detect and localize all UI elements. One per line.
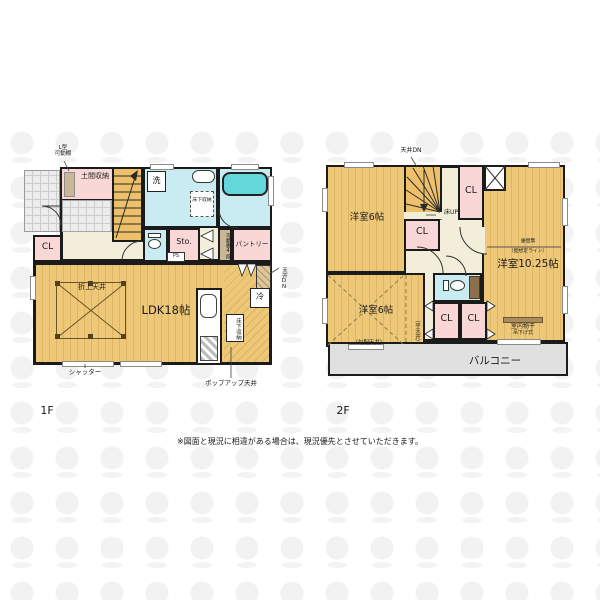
entrance-porch	[24, 170, 60, 232]
floor-up-label: 床UP	[438, 210, 464, 217]
underfloor-storage-label: 床下収納	[191, 192, 213, 204]
ceiling-dn-strip-1f	[256, 265, 271, 290]
corner-unit	[484, 165, 506, 191]
disclaimer-text: ※図面と現況に相違がある場合は、現況優先とさせていただきます。	[0, 438, 600, 447]
toilet-tank-2f	[443, 280, 449, 291]
window-balcony-door	[497, 339, 541, 345]
closet-1f-label: CL	[33, 242, 62, 252]
kitchen-stove	[200, 336, 218, 361]
genkan-tile	[62, 200, 112, 232]
underfloor-storage-box: 床下収納	[190, 191, 214, 217]
l-shelf-annotation: L型 可動棚	[42, 145, 84, 157]
underfloor-kitchen-label: 床下収納	[230, 316, 241, 341]
window	[562, 198, 568, 226]
toilet-bowl-2f	[450, 280, 465, 291]
stairs-2f	[404, 165, 442, 214]
slope-ceiling-label: （勾配天井）	[344, 340, 394, 346]
movable-shelf-4-label: 可動棚4段	[220, 231, 230, 261]
vanity-sink	[192, 170, 215, 183]
wall-opening	[481, 227, 485, 254]
shutter-label: シャッター	[62, 369, 108, 376]
bedroom6-bottom-label: 洋室6帖	[348, 306, 404, 317]
raised-ceiling-label: 折上天井	[66, 284, 118, 292]
window-shutter	[62, 361, 114, 367]
closet-2f-b-label: CL	[404, 227, 440, 238]
pantry-label: パントリー	[232, 241, 272, 248]
fridge-label: 冷	[250, 293, 270, 302]
bathtub	[222, 172, 268, 196]
toilet-bowl-1f	[148, 239, 161, 249]
bedroom1025-label: 洋室10.25帖	[490, 259, 566, 271]
washer-label: 洗	[147, 177, 166, 186]
tarekabe-label: 垂壁無	[500, 239, 556, 244]
window	[268, 176, 274, 206]
window	[344, 162, 374, 168]
window	[322, 298, 328, 324]
window	[120, 361, 162, 367]
ceiling-dn-1f-label: 天井DN	[277, 259, 287, 297]
window	[322, 188, 328, 212]
flat-ceiling-label: （平天井）	[409, 314, 420, 348]
floor2-title: 2F	[330, 405, 356, 417]
ceiling-dn-2f-label: 天井DN	[394, 148, 428, 155]
window	[150, 164, 174, 170]
bedroom6-top-label: 洋室6帖	[340, 213, 394, 224]
sto-label: Sto.	[168, 238, 200, 247]
toilet-tank-1f	[148, 233, 161, 238]
window	[562, 286, 568, 314]
popup-ceiling-label: ポップアップ天井	[198, 380, 264, 387]
indoor-drying-type-label: 吊下げ式	[502, 331, 544, 337]
wall-line-label: （壁想定ライン）	[496, 249, 560, 254]
closet-2f-c-label: CL	[433, 314, 460, 325]
closet-2f-d-label: CL	[460, 314, 487, 325]
window	[30, 276, 36, 300]
window	[231, 164, 259, 170]
balcony-label: バルコニー	[450, 356, 540, 368]
ps-label: PS	[167, 254, 185, 260]
ldk-label: LDK18帖	[128, 304, 204, 317]
closet-2f-a-label: CL	[458, 186, 484, 197]
floor1-title: 1F	[34, 405, 60, 417]
window	[528, 162, 560, 168]
doma-label: 土間収納	[72, 173, 118, 181]
toilet-cabinet	[469, 276, 480, 299]
floorplan-canvas: 床下収納	[0, 0, 600, 600]
